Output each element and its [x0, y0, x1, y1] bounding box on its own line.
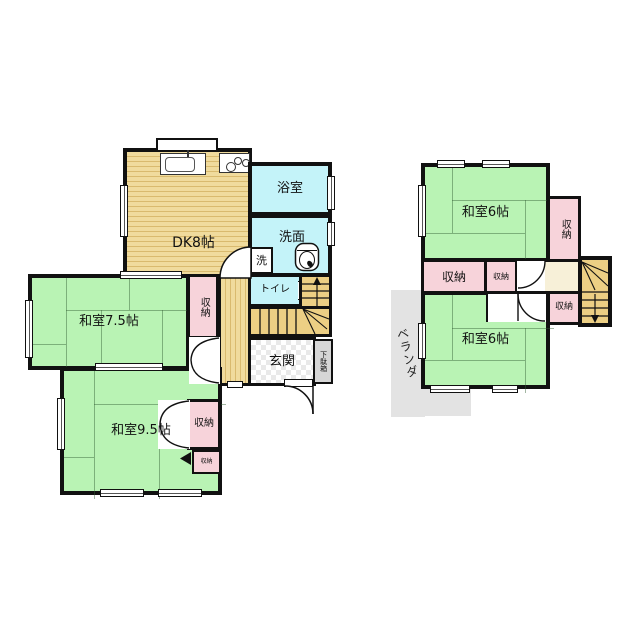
window — [492, 385, 518, 393]
tatami-line — [66, 310, 194, 311]
door-swing-marker-icon — [180, 452, 191, 465]
stairs-2f-treads — [582, 260, 608, 323]
tatami-line — [94, 371, 95, 499]
closet-2f-stair-label: 収納 — [555, 303, 573, 312]
laundry-label: 洗 — [256, 255, 267, 267]
tatami-line — [425, 233, 525, 234]
tatami-line — [525, 200, 526, 266]
faucet-icon — [187, 150, 189, 157]
floorplan-canvas: ベランダ DK8帖 浴室 洗面 洗 トイレ — [0, 0, 640, 640]
door-arc-2f-hall — [517, 260, 547, 290]
tatami-line — [66, 278, 67, 374]
closet-2f-right-label: 収納 — [559, 219, 570, 239]
closet-2f-left-label: 収納 — [442, 271, 466, 284]
kitchen-sink — [160, 153, 206, 175]
double-door-closet-95 — [158, 400, 190, 449]
front-door-arc — [284, 385, 314, 416]
wall-gap — [227, 381, 243, 388]
door-arc-dk — [219, 246, 252, 279]
tatami-line — [129, 278, 130, 310]
room-washitsu-75: 和室7.5帖 — [28, 274, 190, 370]
closet-2f-left: 収納 — [421, 259, 487, 295]
closet-95-label: 収納 — [194, 419, 214, 430]
window — [158, 489, 202, 497]
toilet-icon — [293, 242, 321, 273]
closet-2f-stair: 収納 — [547, 291, 581, 325]
closet-2f-right: 収納 — [547, 196, 581, 262]
kitchen-stove — [219, 153, 250, 173]
window — [100, 489, 144, 497]
door-arc-2f-room — [517, 293, 546, 322]
window — [482, 160, 510, 168]
hallway-1f — [218, 274, 251, 386]
bath-label: 浴室 — [277, 182, 303, 196]
dk-label: DK8帖 — [172, 236, 215, 251]
laundry-box: 洗 — [250, 247, 273, 274]
tatami-line — [425, 360, 525, 361]
washitsu-6-bottom-label: 和室6帖 — [462, 333, 509, 347]
window — [25, 300, 33, 358]
closet-95-small-label: 収納 — [200, 459, 212, 465]
sliding-door-opening — [120, 271, 182, 279]
stove-burner-icon — [226, 162, 236, 172]
washitsu-6-top-label: 和室6帖 — [462, 206, 509, 220]
window — [57, 398, 65, 450]
stairs-1f-upper-treads — [302, 277, 329, 308]
closet-95: 収納 — [187, 399, 221, 450]
closet-hall-label: 収納 — [198, 297, 209, 317]
window — [418, 323, 426, 359]
window — [437, 160, 465, 168]
closet-2f-mid-label: 収納 — [493, 273, 509, 281]
window — [418, 185, 426, 237]
stairs-1f-lower-treads — [251, 309, 329, 334]
room-toilet: トイレ — [248, 274, 302, 307]
window — [120, 185, 128, 237]
window — [327, 222, 335, 246]
closet-2f-mid: 収納 — [484, 259, 518, 295]
tatami-line — [525, 328, 526, 393]
sliding-door-opening — [95, 363, 163, 371]
tatami-line — [452, 328, 554, 329]
stairs-down-arrow-icon — [591, 315, 599, 323]
window — [430, 385, 470, 393]
tatami-line — [32, 344, 66, 345]
tatami-line — [64, 457, 94, 458]
double-door-hall — [189, 337, 220, 384]
closet-hall-1f: 収納 — [187, 274, 219, 339]
window — [327, 176, 335, 210]
room-washitsu-6-top: 和室6帖 — [421, 163, 550, 262]
sink-basin-icon — [165, 157, 195, 172]
closet-95-small: 収納 — [192, 450, 221, 474]
getabako-box: 下駄箱 — [313, 339, 333, 384]
getabako-label: 下駄箱 — [319, 351, 326, 372]
tatami-line — [452, 200, 554, 201]
stairs-up-arrow-icon — [313, 277, 321, 285]
toilet-label: トイレ — [260, 285, 290, 296]
genkan-label: 玄関 — [269, 355, 295, 369]
washitsu-75-label: 和室7.5帖 — [79, 315, 139, 329]
room-bath: 浴室 — [248, 162, 332, 216]
